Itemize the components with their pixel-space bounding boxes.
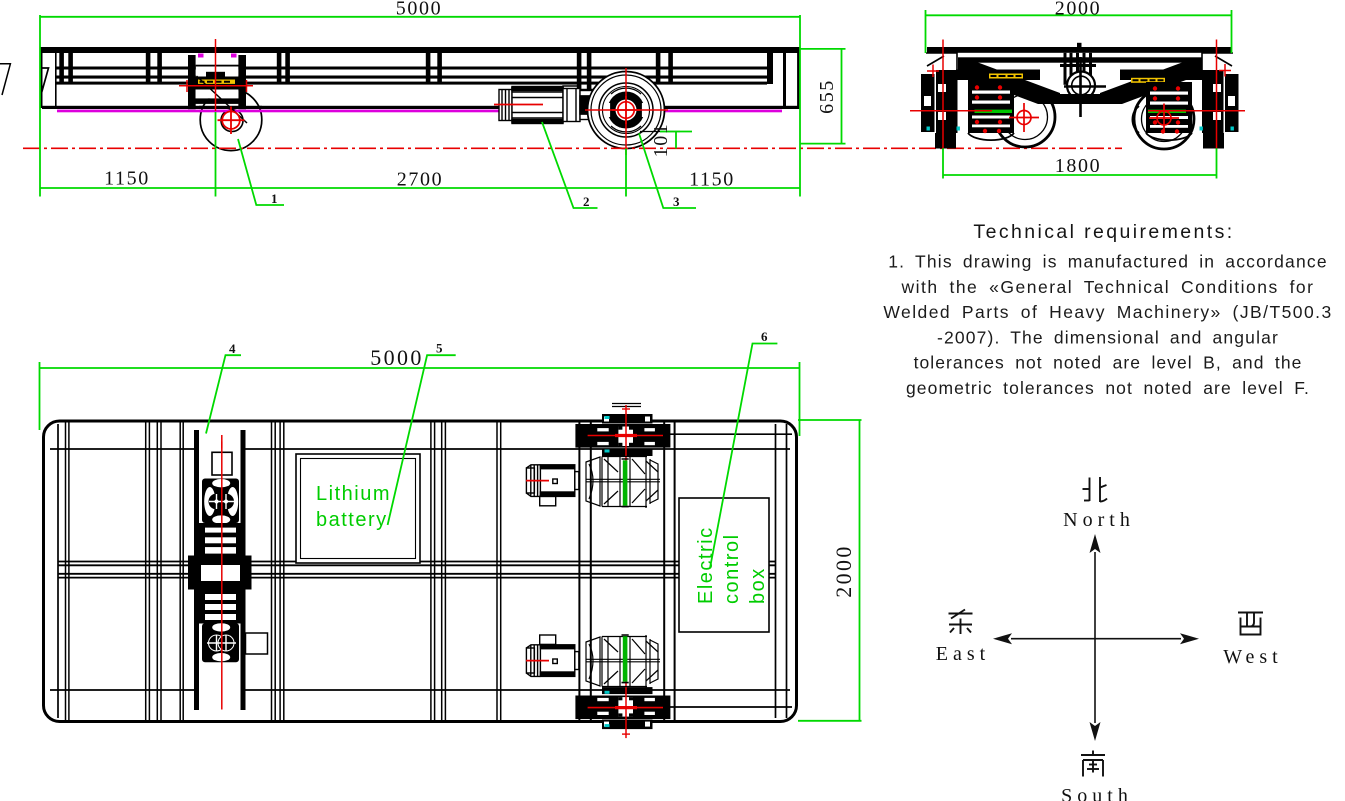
svg-text:2700: 2700 [397,169,443,191]
svg-text:1: 1 [271,191,278,206]
svg-text:5000: 5000 [396,0,442,20]
svg-text:battery: battery [316,509,388,531]
svg-text:North: North [1063,509,1135,531]
svg-text:2000: 2000 [1055,0,1101,20]
svg-text:6: 6 [761,329,768,344]
svg-text:1. This drawing is manufacture: 1. This drawing is manufactured in accor… [888,252,1328,272]
svg-text:South: South [1061,785,1133,801]
svg-text:2: 2 [583,194,590,209]
svg-text:Electric: Electric [695,526,717,604]
svg-text:3: 3 [673,194,680,209]
svg-text:101: 101 [650,123,672,158]
svg-text:West: West [1223,646,1283,668]
svg-text:tolerances not noted are level: tolerances not noted are level B, and th… [914,353,1303,373]
svg-text:Lithium: Lithium [316,483,391,505]
svg-text:box: box [747,567,769,604]
svg-text:1150: 1150 [689,169,735,191]
svg-text:geometric tolerances not noted: geometric tolerances not noted are level… [906,378,1310,398]
svg-text:control: control [721,533,743,604]
svg-text:2000: 2000 [831,544,856,598]
svg-text:5000: 5000 [370,345,424,370]
svg-text:5: 5 [436,341,443,356]
svg-text:4: 4 [229,341,236,356]
svg-text:1150: 1150 [104,168,150,190]
svg-text:1800: 1800 [1055,155,1101,177]
svg-text:East: East [936,643,990,665]
svg-text:655: 655 [816,79,838,114]
svg-text:with the «General Technical Co: with the «General Technical Conditions f… [900,277,1314,297]
svg-text:Welded Parts of Heavy Machiner: Welded Parts of Heavy Machinery» (JB/T50… [883,302,1332,322]
svg-text:Technical requirements:: Technical requirements: [973,221,1234,243]
svg-text:-2007). The dimensional and an: -2007). The dimensional and angular [937,327,1279,347]
